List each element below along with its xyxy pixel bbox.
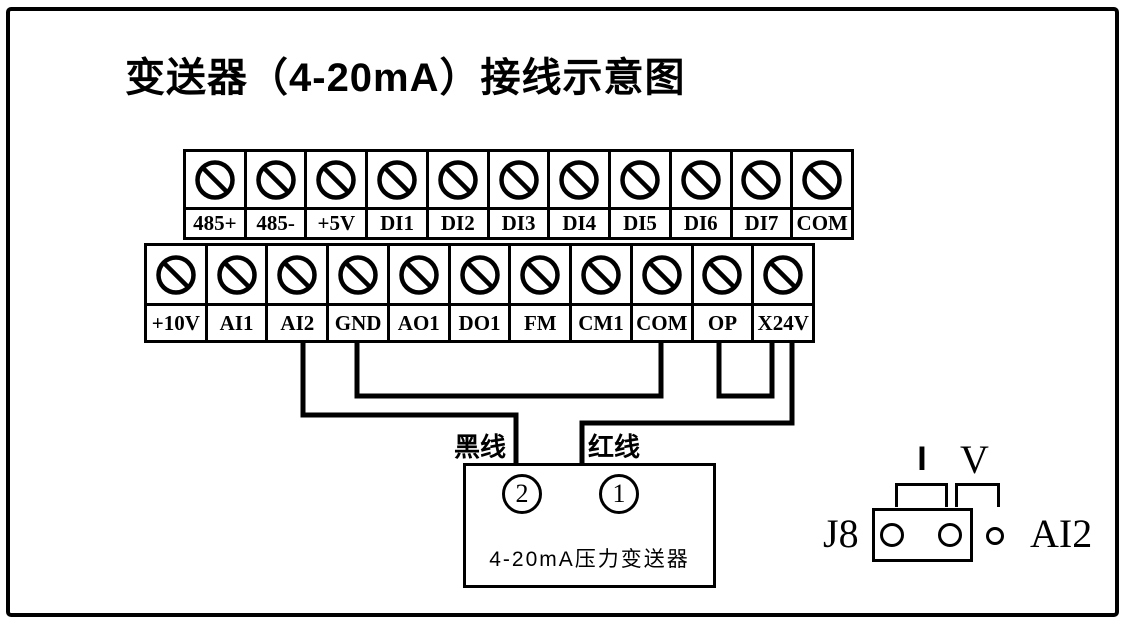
screw-icon xyxy=(640,253,684,297)
screw-terminal xyxy=(451,246,509,306)
terminal-block-top: 485+485-+5VDI1DI2DI3DI4DI5DI6DI7COM xyxy=(183,149,854,240)
transmitter-pin-2: 2 xyxy=(502,474,542,514)
terminal-x24v: X24V xyxy=(751,243,815,343)
screw-terminal xyxy=(429,152,487,210)
screw-terminal xyxy=(793,152,851,210)
terminal-gnd: GND xyxy=(326,243,390,343)
screw-icon xyxy=(436,158,480,202)
screw-terminal xyxy=(390,246,448,306)
jumper-channel-label: AI2 xyxy=(1030,514,1092,554)
jumper-name-label: J8 xyxy=(823,514,859,554)
transmitter-box: 2 1 4-20mA压力变送器 xyxy=(463,463,716,588)
terminal-label: DI4 xyxy=(550,210,608,237)
screw-terminal xyxy=(572,246,630,306)
terminal-label: COM xyxy=(633,306,691,340)
screw-icon xyxy=(314,158,358,202)
screw-terminal xyxy=(694,246,752,306)
terminal-5v: +5V xyxy=(304,149,368,240)
terminal-label: X24V xyxy=(754,306,812,340)
terminal-485: 485+ xyxy=(183,149,247,240)
terminal-cm1: CM1 xyxy=(569,243,633,343)
screw-terminal xyxy=(511,246,569,306)
screw-icon xyxy=(739,158,783,202)
terminal-label: DI5 xyxy=(611,210,669,237)
screw-terminal xyxy=(672,152,730,210)
terminal-label: DI6 xyxy=(672,210,730,237)
screw-terminal xyxy=(329,246,387,306)
terminal-label: DI2 xyxy=(429,210,487,237)
screw-icon xyxy=(254,158,298,202)
terminal-label: CM1 xyxy=(572,306,630,340)
terminal-485: 485- xyxy=(244,149,308,240)
terminal-di7: DI7 xyxy=(730,149,794,240)
terminal-di5: DI5 xyxy=(608,149,672,240)
screw-terminal xyxy=(368,152,426,210)
screw-icon xyxy=(375,158,419,202)
screw-icon xyxy=(336,253,380,297)
screw-terminal xyxy=(147,246,205,306)
screw-terminal xyxy=(611,152,669,210)
terminal-label: AO1 xyxy=(390,306,448,340)
terminal-di4: DI4 xyxy=(547,149,611,240)
screw-terminal xyxy=(754,246,812,306)
terminal-label: 485- xyxy=(247,210,305,237)
screw-terminal xyxy=(268,246,326,306)
diagram-title: 变送器（4-20mA）接线示意图 xyxy=(125,45,686,103)
jumper-pin-1 xyxy=(880,523,904,547)
terminal-ai1: AI1 xyxy=(205,243,269,343)
screw-icon xyxy=(154,253,198,297)
screw-icon xyxy=(518,253,562,297)
screw-terminal xyxy=(307,152,365,210)
terminal-label: 485+ xyxy=(186,210,244,237)
voltage-mode-label: V xyxy=(960,440,989,480)
terminal-com: COM xyxy=(630,243,694,343)
terminal-10v: +10V xyxy=(144,243,208,343)
terminal-di6: DI6 xyxy=(669,149,733,240)
terminal-block-bottom: +10VAI1AI2GNDAO1DO1FMCM1COMOPX24V xyxy=(144,243,815,343)
voltage-mode-bracket xyxy=(955,483,1000,507)
transmitter-pin-1: 1 xyxy=(599,474,639,514)
screw-icon xyxy=(193,158,237,202)
terminal-com: COM xyxy=(790,149,854,240)
screw-icon xyxy=(557,158,601,202)
terminal-di1: DI1 xyxy=(365,149,429,240)
terminal-ao1: AO1 xyxy=(387,243,451,343)
terminal-ai2: AI2 xyxy=(265,243,329,343)
transmitter-name: 4-20mA压力变送器 xyxy=(466,543,713,573)
terminal-label: DO1 xyxy=(451,306,509,340)
terminal-di3: DI3 xyxy=(487,149,551,240)
terminal-do1: DO1 xyxy=(448,243,512,343)
terminal-label: DI3 xyxy=(490,210,548,237)
screw-terminal xyxy=(733,152,791,210)
red-wire-label: 红线 xyxy=(588,427,640,464)
terminal-label: +10V xyxy=(147,306,205,340)
wiring-diagram: 变送器（4-20mA）接线示意图 485+485-+5VDI1DI2DI3DI4… xyxy=(0,0,1125,624)
screw-icon xyxy=(458,253,502,297)
terminal-op: OP xyxy=(691,243,755,343)
screw-icon xyxy=(275,253,319,297)
terminal-fm: FM xyxy=(508,243,572,343)
screw-terminal xyxy=(186,152,244,210)
screw-icon xyxy=(497,158,541,202)
screw-terminal xyxy=(550,152,608,210)
terminal-label: COM xyxy=(793,210,851,237)
screw-icon xyxy=(800,158,844,202)
screw-terminal xyxy=(208,246,266,306)
screw-icon xyxy=(618,158,662,202)
screw-terminal xyxy=(490,152,548,210)
terminal-label: DI7 xyxy=(733,210,791,237)
black-wire-label: 黑线 xyxy=(454,427,506,464)
screw-icon xyxy=(700,253,744,297)
current-mode-bracket xyxy=(895,483,948,507)
current-mode-label: I xyxy=(914,442,930,476)
terminal-label: FM xyxy=(511,306,569,340)
screw-terminal xyxy=(633,246,691,306)
screw-icon xyxy=(579,253,623,297)
terminal-label: +5V xyxy=(307,210,365,237)
screw-terminal xyxy=(247,152,305,210)
terminal-label: AI2 xyxy=(268,306,326,340)
screw-icon xyxy=(397,253,441,297)
terminal-label: DI1 xyxy=(368,210,426,237)
screw-icon xyxy=(679,158,723,202)
terminal-label: OP xyxy=(694,306,752,340)
jumper-pin-3 xyxy=(986,527,1004,545)
terminal-di2: DI2 xyxy=(426,149,490,240)
screw-icon xyxy=(215,253,259,297)
terminal-label: GND xyxy=(329,306,387,340)
terminal-label: AI1 xyxy=(208,306,266,340)
jumper-pin-2 xyxy=(938,523,962,547)
screw-icon xyxy=(761,253,805,297)
